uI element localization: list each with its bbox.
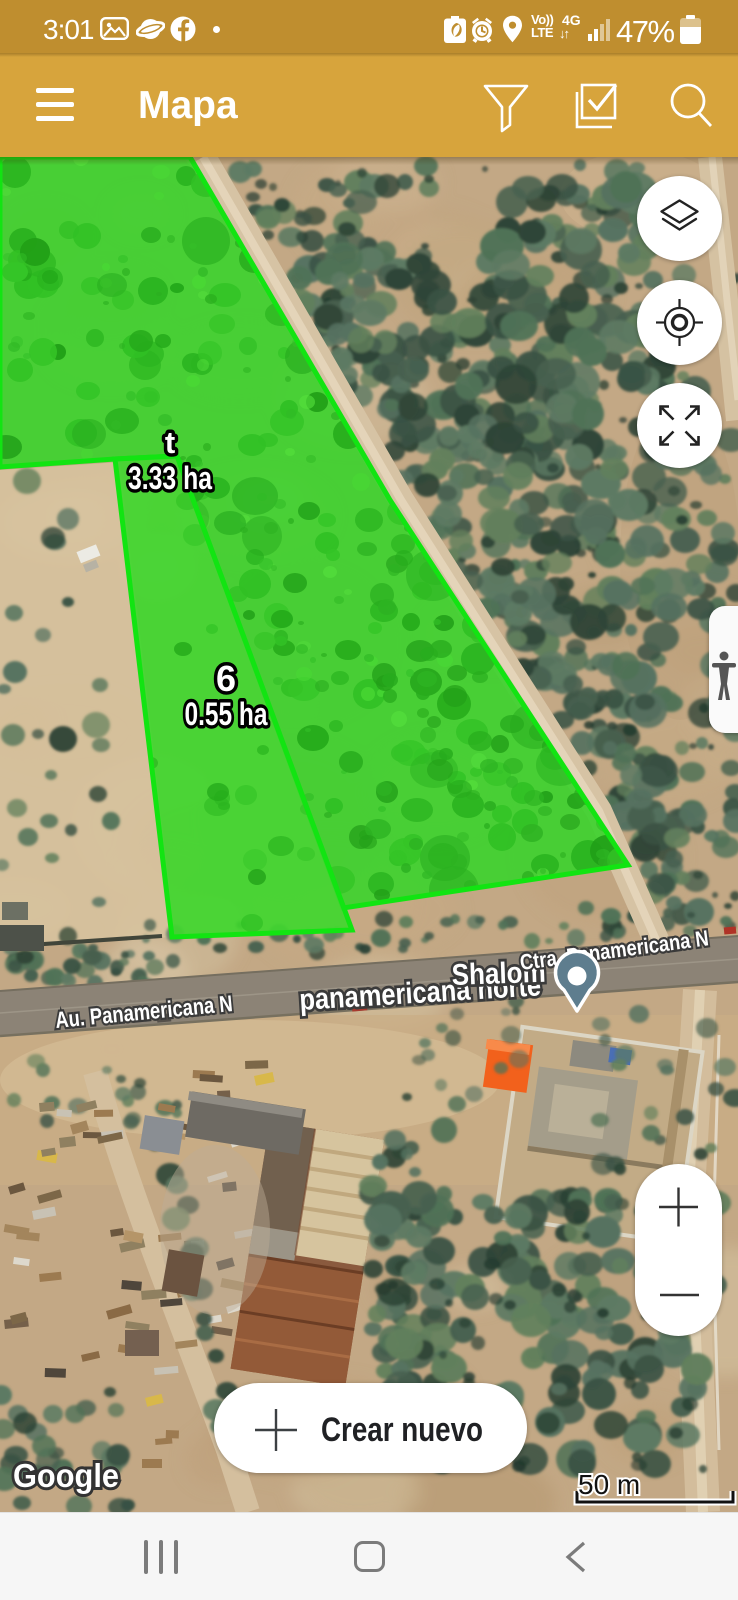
svg-text:Google: Google [13,1457,119,1494]
svg-text:t: t [165,425,175,460]
svg-text:50 m: 50 m [578,1469,640,1500]
svg-text:6: 6 [216,658,236,699]
svg-text:0.55 ha: 0.55 ha [185,696,268,732]
svg-text:3.33 ha: 3.33 ha [128,460,212,496]
svg-text:Crear nuevo: Crear nuevo [321,1411,483,1449]
